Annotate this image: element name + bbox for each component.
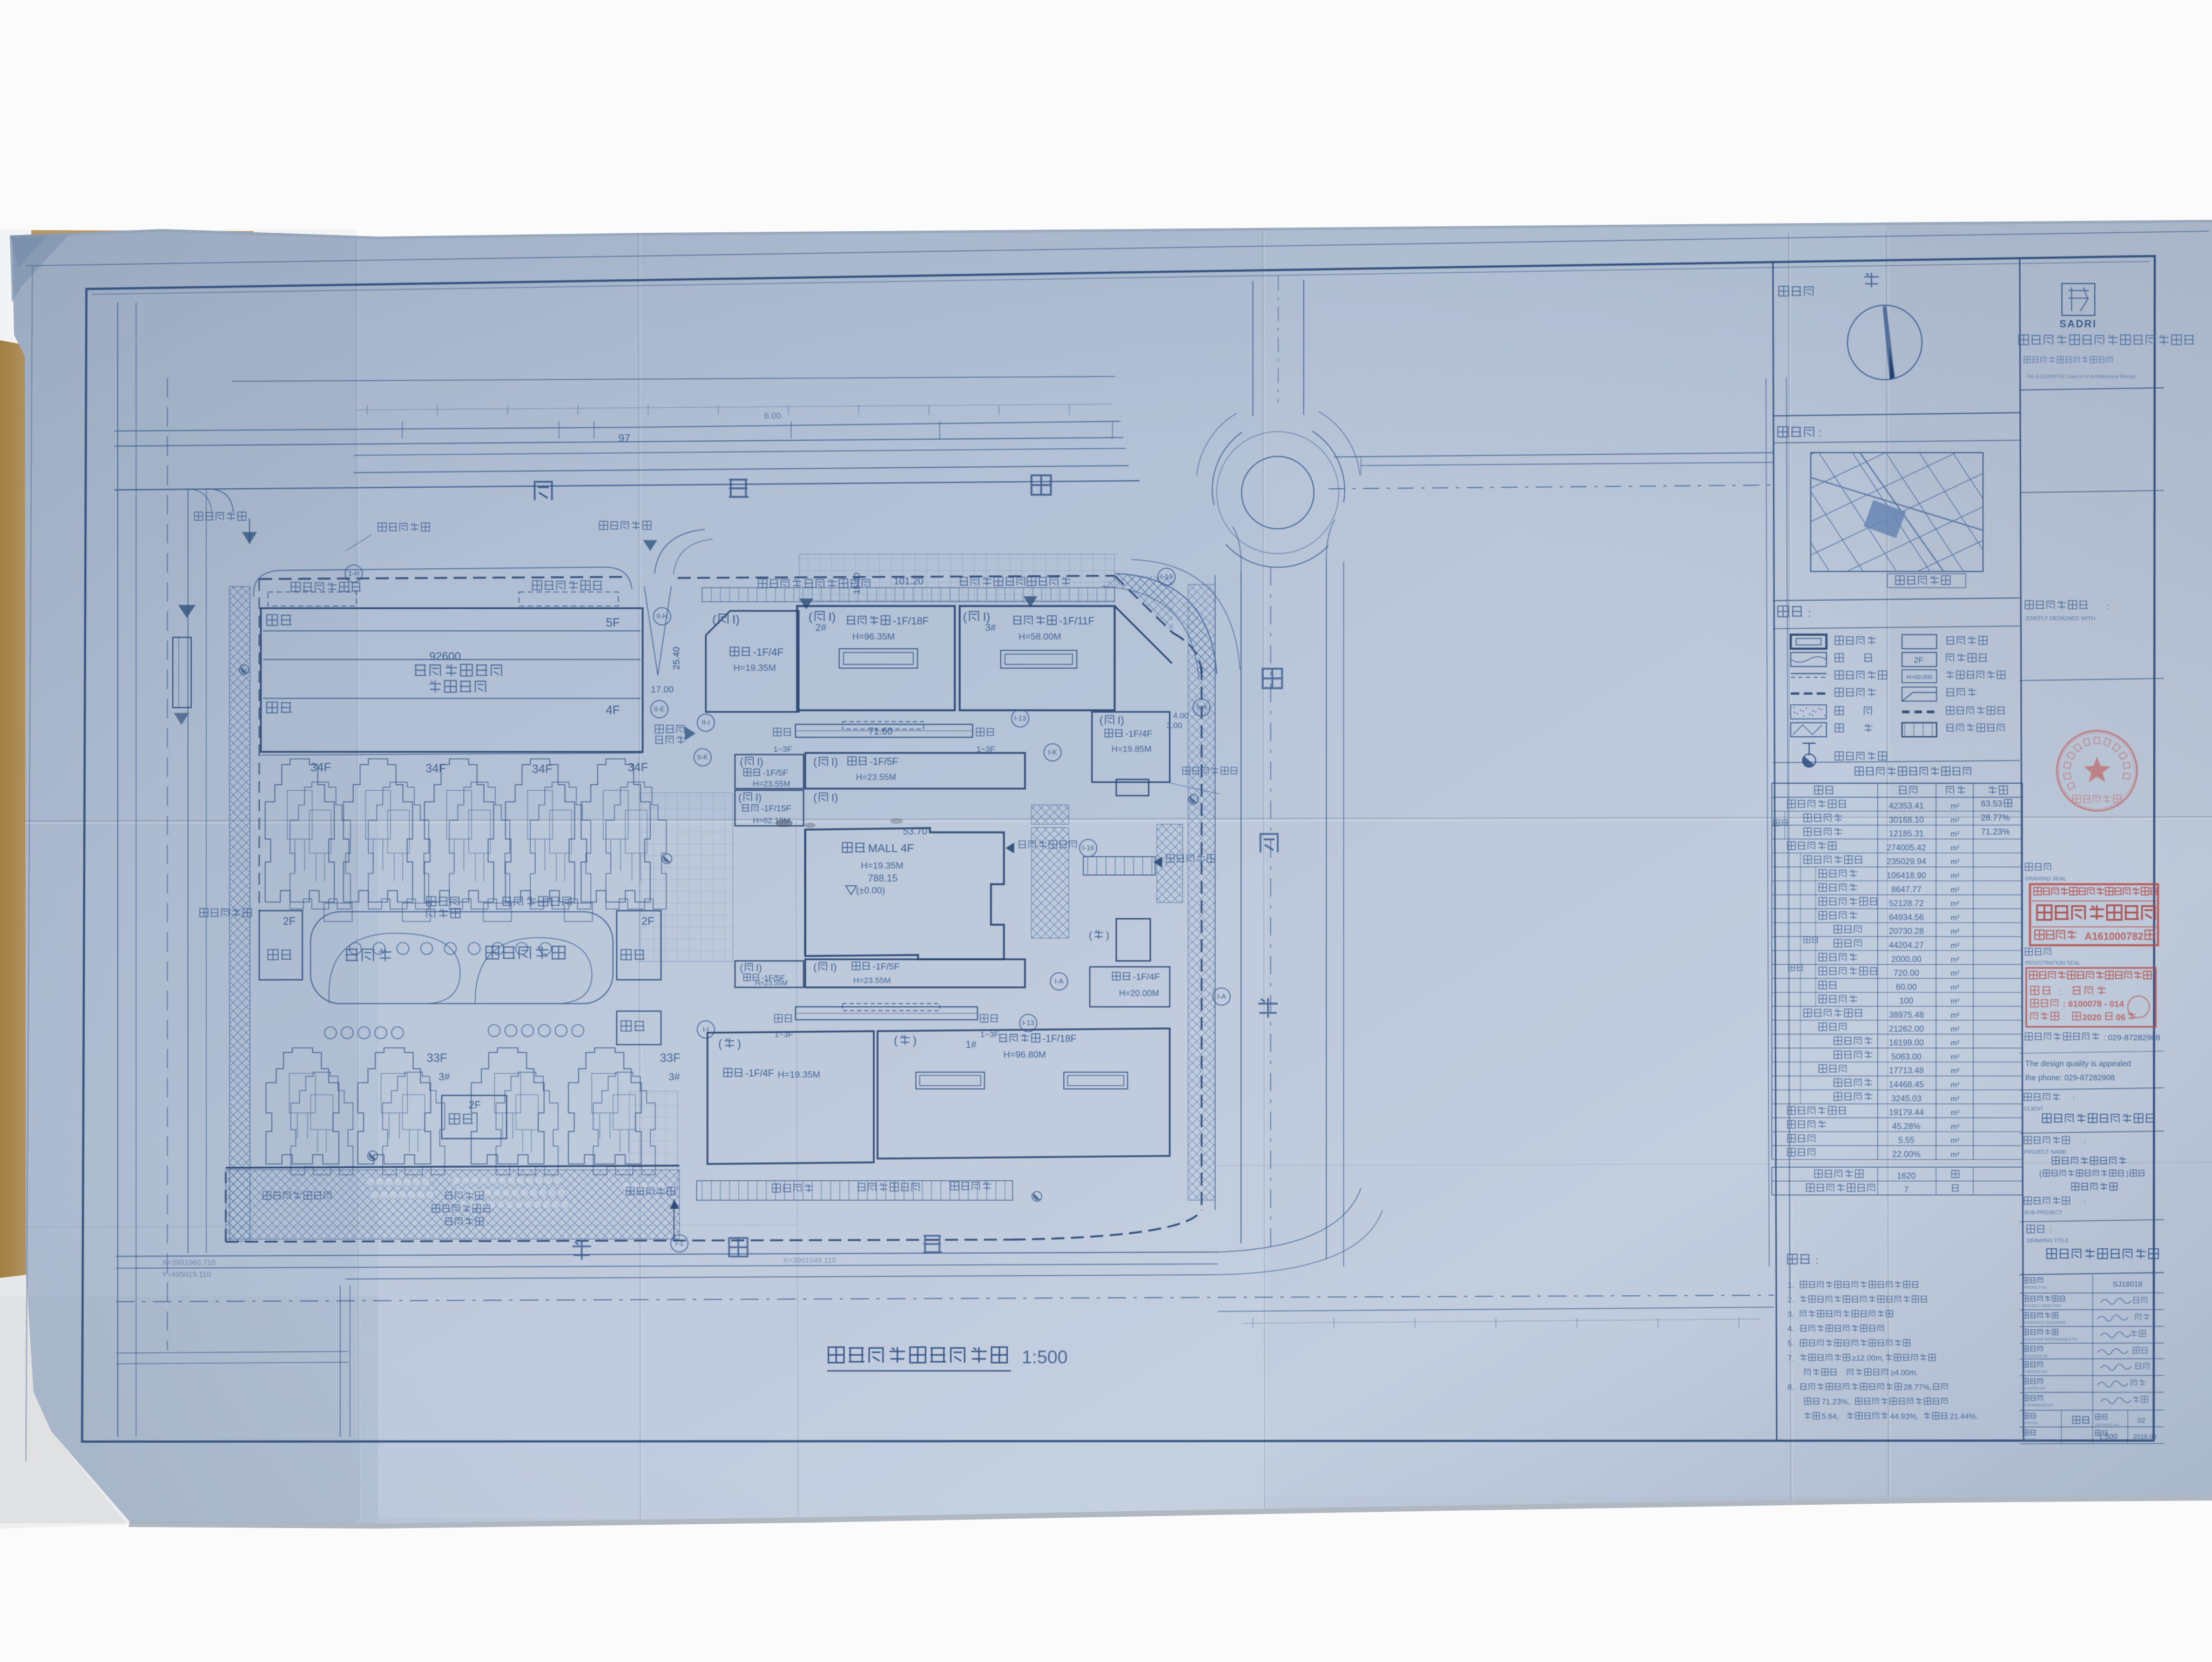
svg-text:PROJECT NAME: PROJECT NAME	[2024, 1149, 2066, 1155]
svg-text:-1F/4F: -1F/4F	[753, 647, 784, 658]
svg-text:I): I)	[831, 757, 838, 769]
svg-text:≥12.00m,: ≥12.00m,	[1852, 1354, 1884, 1363]
svg-text:44.93%,: 44.93%,	[1890, 1412, 1918, 1421]
svg-text:the phone: 029-87282908: the phone: 029-87282908	[2025, 1074, 2115, 1082]
svg-text:CHECKED BY: CHECKED BY	[2023, 1370, 2048, 1374]
svg-text:34F: 34F	[628, 761, 648, 774]
svg-text:JOINTLY DESIGNED WITH: JOINTLY DESIGNED WITH	[2025, 615, 2095, 622]
svg-text:): )	[1106, 930, 1109, 941]
svg-text:-1F/5F: -1F/5F	[873, 961, 900, 972]
svg-text:The design quality is appealed: The design quality is appealed	[2025, 1060, 2131, 1068]
svg-text:274005.42: 274005.42	[1886, 843, 1926, 852]
svg-text:3.00: 3.00	[1166, 721, 1182, 730]
svg-text:PROJECT No.: PROJECT No.	[2023, 1286, 2047, 1290]
svg-text:): )	[737, 1038, 741, 1051]
svg-text::: :	[2073, 1094, 2075, 1102]
svg-text:I): I)	[983, 610, 990, 624]
svg-text:1~3F: 1~3F	[980, 1030, 999, 1039]
svg-text:5.64,: 5.64,	[1822, 1412, 1839, 1421]
svg-text:I): I)	[1117, 715, 1124, 727]
svg-text:I): I)	[756, 963, 762, 973]
svg-text:m²: m²	[1951, 830, 1960, 838]
svg-text::: :	[1816, 1255, 1818, 1266]
svg-text::: :	[1808, 608, 1811, 620]
svg-text:12185.31: 12185.31	[1889, 830, 1924, 839]
svg-text:44204.27: 44204.27	[1889, 941, 1924, 950]
svg-text:-1F/11F: -1F/11F	[1059, 616, 1094, 627]
svg-text:(: (	[718, 1038, 722, 1051]
svg-text:m²: m²	[1951, 843, 1960, 852]
svg-text:H=23.55M: H=23.55M	[753, 779, 791, 789]
svg-text:4.00: 4.00	[1173, 711, 1189, 721]
svg-text:m²: m²	[1951, 955, 1960, 964]
svg-text:Y=495019.110: Y=495019.110	[162, 1270, 211, 1279]
svg-text:5063.00: 5063.00	[1891, 1052, 1921, 1061]
svg-text:3.: 3.	[1788, 1310, 1794, 1319]
svg-text:SADRI: SADRI	[2059, 319, 2096, 330]
svg-text:60.00: 60.00	[1896, 983, 1917, 992]
svg-text:22.00%: 22.00%	[1892, 1150, 1921, 1159]
svg-text:720.00: 720.00	[1893, 969, 1919, 978]
svg-text:33F: 33F	[660, 1051, 680, 1065]
svg-text:1620: 1620	[1897, 1172, 1916, 1181]
svg-text:H=23.55M: H=23.55M	[853, 976, 891, 985]
svg-text:34F: 34F	[532, 762, 552, 776]
svg-text:1:500: 1:500	[1022, 1347, 1068, 1368]
svg-text:X=3901049.110: X=3901049.110	[783, 1256, 836, 1264]
svg-text:-1F/4F: -1F/4F	[1133, 972, 1160, 982]
svg-text:100: 100	[1899, 997, 1913, 1006]
svg-text:m²: m²	[1951, 1011, 1960, 1019]
svg-text::: :	[2063, 1013, 2065, 1021]
svg-text:m²: m²	[1951, 913, 1960, 921]
svg-text:3#: 3#	[669, 1072, 680, 1083]
svg-text:H=20.00M: H=20.00M	[1119, 989, 1159, 998]
svg-text:m²: m²	[1951, 1025, 1960, 1033]
svg-text:AUTHORIZED BY: AUTHORIZED BY	[2023, 1404, 2054, 1408]
svg-text::: :	[2083, 1137, 2086, 1146]
svg-text:m²: m²	[1951, 927, 1960, 936]
svg-text:I-A: I-A	[1055, 977, 1064, 985]
svg-text:(: (	[813, 757, 817, 769]
svg-text:21.44%.: 21.44%.	[1950, 1412, 1978, 1421]
svg-text:II-I: II-I	[702, 718, 710, 726]
svg-text:42353.41: 42353.41	[1889, 802, 1924, 811]
svg-text:(: (	[813, 792, 817, 804]
svg-text:II-A: II-A	[1196, 703, 1208, 711]
svg-text:DISCIPLINE RESPONSIBLE BY: DISCIPLINE RESPONSIBLE BY	[2023, 1338, 2078, 1342]
svg-text:m²: m²	[1951, 899, 1960, 908]
svg-text:106418.90: 106418.90	[1886, 871, 1926, 880]
svg-text:I): I)	[732, 613, 740, 627]
svg-text:02: 02	[2137, 1416, 2145, 1424]
svg-text:235029.94: 235029.94	[1886, 857, 1926, 866]
svg-text:I-K: I-K	[1048, 748, 1057, 756]
svg-text:16199.00: 16199.00	[1889, 1039, 1924, 1048]
svg-text:m²: m²	[1951, 1066, 1960, 1075]
svg-text:8647.77: 8647.77	[1891, 885, 1921, 894]
svg-text:H=62.15M: H=62.15M	[753, 816, 791, 825]
svg-text:28.77%,: 28.77%,	[1904, 1383, 1932, 1392]
svg-text:(: (	[808, 610, 813, 624]
svg-text:H=96.35M: H=96.35M	[852, 631, 895, 642]
svg-text:II-K: II-K	[697, 753, 709, 761]
svg-text::: :	[2083, 1197, 2086, 1206]
svg-text:m²: m²	[1951, 941, 1960, 950]
svg-text:H=19.85M: H=19.85M	[1111, 745, 1151, 754]
svg-text:28.77%: 28.77%	[1981, 813, 2010, 823]
svg-text:STATUS: STATUS	[2023, 1422, 2038, 1425]
svg-text:97: 97	[618, 433, 630, 445]
svg-text:II-H: II-H	[657, 612, 668, 620]
svg-text:I): I)	[756, 792, 762, 804]
svg-text:m²: m²	[1951, 1080, 1960, 1089]
svg-text:2F: 2F	[1914, 656, 1924, 665]
svg-text:A161000782: A161000782	[2085, 931, 2143, 943]
svg-text:-1F/18F: -1F/18F	[893, 616, 929, 627]
svg-text:(: (	[1089, 930, 1092, 941]
svg-text:5.: 5.	[1788, 1340, 1794, 1348]
svg-text:H=96.80M: H=96.80M	[1003, 1049, 1046, 1060]
svg-text:3#: 3#	[439, 1072, 450, 1083]
svg-text:5.55: 5.55	[1898, 1136, 1914, 1145]
svg-text:DRAWING TITLE: DRAWING TITLE	[2027, 1238, 2069, 1244]
svg-text:H=00.000: H=00.000	[1906, 674, 1932, 681]
svg-text:71.60: 71.60	[868, 726, 893, 737]
svg-text:17.00: 17.00	[651, 684, 674, 695]
svg-text:H=23.55M: H=23.55M	[856, 773, 896, 782]
svg-text:DATE: DATE	[2095, 1439, 2105, 1443]
svg-text:1~3F: 1~3F	[773, 745, 792, 754]
svg-text:15.00: 15.00	[853, 573, 862, 594]
svg-text:m²: m²	[1951, 1136, 1960, 1145]
svg-text:SJ18018: SJ18018	[2113, 1280, 2142, 1288]
svg-text:): )	[2126, 1169, 2129, 1177]
svg-text:m²: m²	[1951, 885, 1960, 894]
svg-text:7: 7	[1904, 1186, 1909, 1195]
svg-text:14468.45: 14468.45	[1889, 1080, 1924, 1089]
svg-text::: :	[1819, 427, 1822, 439]
svg-text:25.40: 25.40	[671, 647, 682, 670]
svg-text:2F: 2F	[283, 916, 295, 927]
svg-text:(: (	[813, 962, 817, 973]
svg-text:-1F/18F: -1F/18F	[1042, 1033, 1076, 1044]
svg-text::: :	[2059, 988, 2061, 997]
svg-text:06: 06	[2116, 1013, 2126, 1022]
svg-text:H=19.35M: H=19.35M	[733, 663, 776, 673]
svg-text:71.23%,: 71.23%,	[1822, 1398, 1850, 1407]
svg-text:CLIENT: CLIENT	[2024, 1106, 2044, 1112]
svg-text:(: (	[712, 613, 717, 627]
svg-text:101.20: 101.20	[894, 576, 923, 587]
svg-text:92600: 92600	[429, 650, 461, 663]
svg-text:4.: 4.	[1788, 1325, 1794, 1334]
svg-text:2F: 2F	[469, 1100, 481, 1111]
svg-text:m²: m²	[1951, 1094, 1960, 1103]
svg-text:-1F/4F: -1F/4F	[1125, 729, 1152, 739]
svg-text:I-A: I-A	[1217, 992, 1226, 1000]
svg-text:REGISTRATION SEAL: REGISTRATION SEAL	[2025, 960, 2081, 966]
svg-text:m²: m²	[1951, 997, 1960, 1005]
svg-text:2.: 2.	[1788, 1296, 1794, 1304]
svg-text:2#: 2#	[815, 622, 826, 633]
svg-text::: :	[2107, 602, 2109, 611]
svg-text:(: (	[740, 963, 743, 973]
svg-text:1-H: 1-H	[348, 569, 360, 577]
svg-text:m²: m²	[1951, 1122, 1960, 1131]
svg-text:33F: 33F	[427, 1051, 447, 1065]
svg-text:H=19.35M: H=19.35M	[861, 860, 903, 871]
svg-text:17713.48: 17713.48	[1889, 1066, 1924, 1075]
svg-text:DRAWING No.: DRAWING No.	[2095, 1423, 2120, 1427]
svg-text:63.53: 63.53	[1981, 799, 2002, 809]
svg-text:1#: 1#	[966, 1039, 976, 1050]
svg-text:: 6100078 - 014: : 6100078 - 014	[2063, 1000, 2124, 1009]
svg-text:2000.00: 2000.00	[1891, 955, 1921, 964]
svg-text:m²: m²	[1951, 1039, 1960, 1047]
svg-text:4F: 4F	[606, 703, 620, 717]
svg-text:71.23%: 71.23%	[1981, 827, 2010, 837]
svg-text:MALL 4F: MALL 4F	[868, 843, 914, 855]
svg-text:30168.10: 30168.10	[1889, 816, 1924, 825]
svg-text:-1F/5F: -1F/5F	[869, 756, 898, 767]
svg-text:(: (	[740, 757, 744, 768]
svg-text:I): I)	[828, 610, 836, 624]
svg-text:I): I)	[757, 757, 764, 768]
svg-text:AUDITED BY: AUDITED BY	[2023, 1387, 2046, 1391]
svg-text:2020: 2020	[2082, 1013, 2102, 1022]
svg-text:m²: m²	[1951, 1108, 1960, 1117]
svg-text:m²: m²	[1951, 802, 1960, 810]
svg-text:m²: m²	[1951, 857, 1960, 866]
svg-text:3245.03: 3245.03	[1891, 1094, 1921, 1103]
svg-text:SCALE: SCALE	[2023, 1438, 2035, 1442]
svg-text:52128.72: 52128.72	[1889, 899, 1924, 909]
svg-text:): )	[913, 1035, 916, 1047]
svg-text:34F: 34F	[426, 762, 446, 775]
svg-text:788.15: 788.15	[868, 873, 898, 884]
svg-text:X=3901060.716: X=3901060.716	[162, 1258, 215, 1267]
svg-text:(: (	[2039, 1169, 2042, 1177]
svg-text:SUB-PROJECT: SUB-PROJECT	[2024, 1210, 2062, 1216]
svg-text:20730.28: 20730.28	[1889, 927, 1924, 936]
svg-text:5F: 5F	[606, 616, 620, 629]
svg-text:I-13: I-13	[1161, 573, 1172, 581]
svg-text:H=58.00M: H=58.00M	[1019, 631, 1061, 642]
svg-text:2F: 2F	[642, 916, 654, 927]
svg-text:I): I)	[831, 962, 837, 973]
svg-text:I): I)	[831, 792, 838, 804]
svg-text:2018.08: 2018.08	[2133, 1433, 2157, 1441]
svg-text:I-13: I-13	[1022, 1019, 1034, 1027]
svg-text:(±0.00): (±0.00)	[856, 885, 885, 896]
svg-text:No.A161009782 Class A of Arch: No.A161009782 Class A of Architectural D…	[2028, 374, 2136, 380]
svg-text:SCHEMATIC DESIGNER: SCHEMATIC DESIGNER	[2023, 1321, 2066, 1325]
svg-text:PROJECT DIRECTOR: PROJECT DIRECTOR	[2023, 1304, 2061, 1308]
svg-text:m²: m²	[1951, 816, 1960, 824]
svg-text:m²: m²	[1951, 969, 1960, 978]
svg-text:38975.48: 38975.48	[1889, 1011, 1924, 1020]
svg-text:8.: 8.	[1788, 1383, 1794, 1392]
svg-text:: 029-87282908: : 029-87282908	[2103, 1033, 2160, 1042]
svg-text:I-13: I-13	[1014, 714, 1026, 722]
svg-text:34F: 34F	[311, 761, 331, 774]
svg-text:(: (	[738, 792, 742, 804]
svg-text:53.70: 53.70	[903, 826, 927, 837]
svg-text:(: (	[894, 1035, 898, 1047]
svg-text:≥4.00m.: ≥4.00m.	[1890, 1369, 1918, 1377]
svg-text:m²: m²	[1951, 1150, 1960, 1159]
svg-text:I-1: I-1	[675, 1239, 683, 1247]
svg-text:II-E: II-E	[654, 705, 665, 713]
svg-text:m²: m²	[1951, 1052, 1960, 1061]
svg-text:-1F/15F: -1F/15F	[761, 804, 791, 813]
svg-text:3#: 3#	[985, 622, 996, 633]
svg-text:H=23.55M: H=23.55M	[755, 979, 787, 987]
svg-text:45.28%: 45.28%	[1892, 1122, 1921, 1131]
svg-text:DRAWING SEAL: DRAWING SEAL	[2025, 876, 2067, 882]
svg-text:I-16: I-16	[1082, 844, 1094, 852]
svg-text:7.: 7.	[1788, 1354, 1794, 1363]
svg-text:-1F/4F: -1F/4F	[745, 1068, 774, 1079]
svg-text:19179.44: 19179.44	[1889, 1108, 1924, 1118]
svg-text:DESIGNED BY: DESIGNED BY	[2023, 1355, 2049, 1358]
svg-text:m²: m²	[1951, 983, 1960, 991]
svg-text:-1F/5F: -1F/5F	[763, 769, 788, 778]
svg-text:21262.00: 21262.00	[1889, 1025, 1924, 1034]
svg-text:(: (	[1100, 715, 1103, 727]
svg-text:(: (	[963, 610, 967, 624]
svg-text:H=19.35M: H=19.35M	[778, 1069, 820, 1080]
svg-text:64934.56: 64934.56	[1889, 913, 1924, 922]
svg-text:1.: 1.	[1788, 1281, 1794, 1290]
svg-text:6.00: 6.00	[764, 412, 781, 421]
svg-text:m²: m²	[1951, 871, 1960, 880]
svg-text::: :	[2049, 1226, 2052, 1235]
